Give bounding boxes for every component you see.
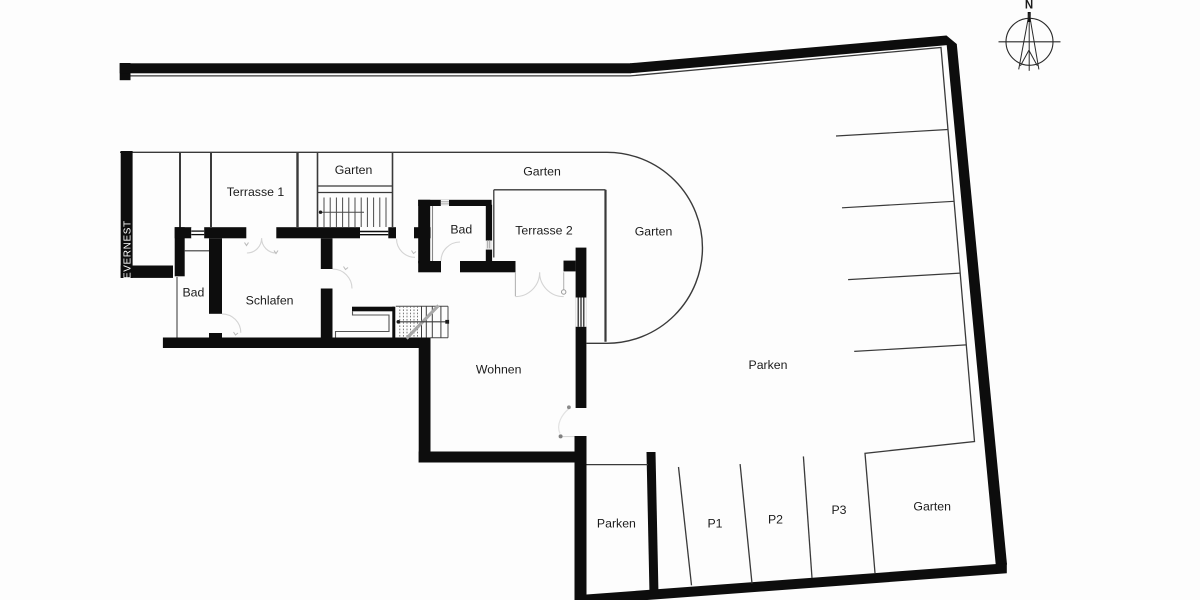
svg-text:Bad: Bad bbox=[182, 286, 204, 300]
svg-text:N: N bbox=[1025, 0, 1033, 12]
svg-text:Schlafen: Schlafen bbox=[246, 294, 294, 308]
svg-text:P3: P3 bbox=[831, 503, 846, 517]
svg-text:Terrasse 1: Terrasse 1 bbox=[227, 185, 285, 199]
svg-text:Garten: Garten bbox=[635, 225, 673, 239]
svg-text:Parken: Parken bbox=[749, 358, 788, 372]
svg-text:Garten: Garten bbox=[335, 163, 373, 177]
svg-text:Garten: Garten bbox=[913, 500, 951, 514]
svg-text:Parken: Parken bbox=[597, 517, 636, 531]
svg-text:P2: P2 bbox=[768, 513, 783, 527]
svg-text:EVERNEST: EVERNEST bbox=[122, 220, 133, 279]
svg-text:Wohnen: Wohnen bbox=[476, 363, 522, 377]
svg-text:Garten: Garten bbox=[523, 165, 561, 179]
svg-text:Terrasse 2: Terrasse 2 bbox=[515, 224, 573, 238]
svg-text:P1: P1 bbox=[707, 517, 722, 531]
svg-text:Bad: Bad bbox=[450, 223, 472, 237]
